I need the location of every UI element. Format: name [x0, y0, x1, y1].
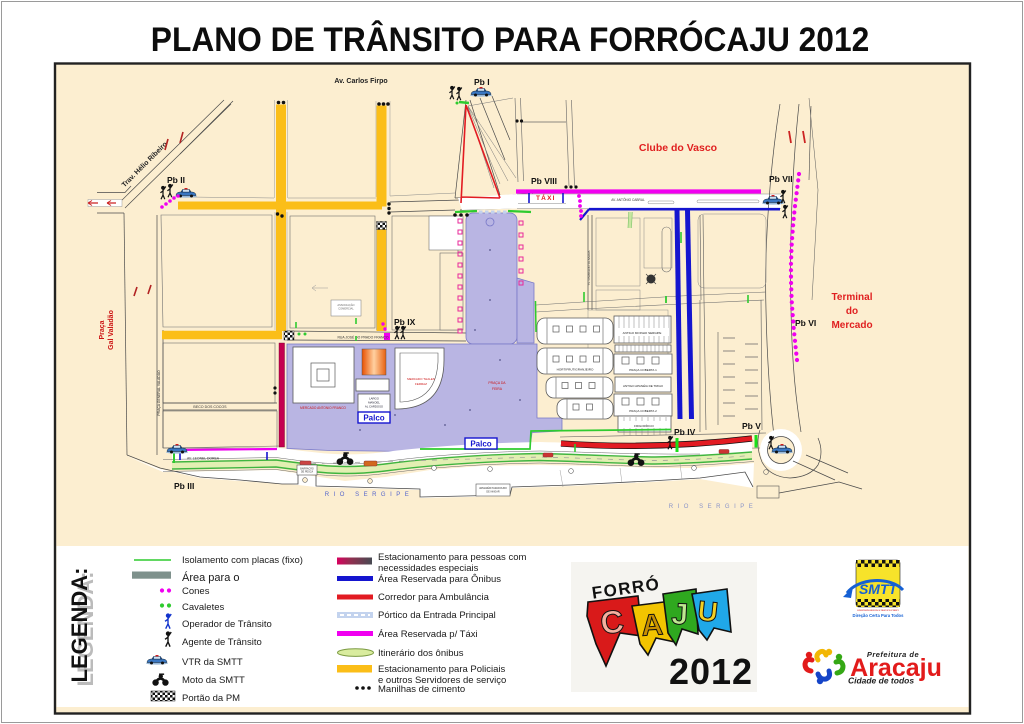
svg-text:HORTIFRUTIGRANJEIRO: HORTIFRUTIGRANJEIRO — [557, 368, 594, 372]
svg-text:Isolamento com placas (fixo): Isolamento com placas (fixo) — [182, 555, 303, 566]
svg-text:AL CARDOSO: AL CARDOSO — [365, 405, 384, 409]
svg-text:Av. Carlos Firpo: Av. Carlos Firpo — [334, 78, 387, 85]
svg-text:Pb II: Pb II — [167, 175, 185, 185]
svg-text:ANTIGO APANÉIA DE TRIGO: ANTIGO APANÉIA DE TRIGO — [623, 383, 664, 388]
svg-text:Moto da SMTT: Moto da SMTT — [182, 675, 245, 686]
svg-text:Cones: Cones — [182, 586, 210, 597]
svg-text:MERCADO ANTONIO FRANCO: MERCADO ANTONIO FRANCO — [300, 406, 346, 410]
svg-text:BECO DOS COCOS: BECO DOS COCOS — [193, 405, 227, 409]
svg-text:ANTIGO MOINHO SERGIPE: ANTIGO MOINHO SERGIPE — [623, 331, 662, 335]
svg-text:RIO SERGIPE: RIO SERGIPE — [669, 504, 758, 510]
svg-text:FRIGORÍFICO: FRIGORÍFICO — [634, 424, 654, 428]
svg-text:FEIRA: FEIRA — [492, 387, 503, 391]
svg-text:RIO SERGIPE: RIO SERGIPE — [325, 492, 414, 498]
svg-text:Corredor para Ambulância: Corredor para Ambulância — [378, 592, 490, 603]
svg-text:Cidade de todos: Cidade de todos — [848, 676, 914, 686]
svg-text:Palco: Palco — [470, 440, 491, 449]
svg-text:2012: 2012 — [669, 651, 753, 692]
svg-text:DE PESCA: DE PESCA — [301, 471, 313, 474]
svg-text:MERCADO THALES: MERCADO THALES — [407, 377, 435, 381]
svg-text:VTR da SMTT: VTR da SMTT — [182, 657, 243, 668]
svg-text:PRAÇA COBERTA 2: PRAÇA COBERTA 2 — [629, 409, 657, 413]
svg-text:PRAÇA COBERTA 1: PRAÇA COBERTA 1 — [629, 368, 657, 372]
svg-text:TÁXI: TÁXI — [536, 193, 556, 202]
svg-text:Itinerário dos ônibus: Itinerário dos ônibus — [378, 648, 464, 659]
svg-text:Pb VII: Pb VII — [769, 174, 793, 184]
svg-text:PRAÇA DA: PRAÇA DA — [488, 381, 506, 385]
svg-text:Área para o: Área para o — [182, 571, 239, 584]
svg-text:AV. ANTÔNIO CABRAL: AV. ANTÔNIO CABRAL — [611, 197, 645, 202]
svg-text:Terminal: Terminal — [832, 292, 873, 303]
svg-text:Pórtico da Entrada Principal: Pórtico da Entrada Principal — [378, 610, 496, 621]
svg-text:Gal Valadão: Gal Valadão — [108, 310, 115, 350]
svg-text:Pb V: Pb V — [742, 421, 761, 431]
svg-text:Mercado: Mercado — [831, 320, 872, 331]
svg-text:U: U — [696, 595, 719, 628]
svg-text:TV. OSWALDO OLIVEIRA: TV. OSWALDO OLIVEIRA — [587, 250, 591, 285]
svg-text:Pb I: Pb I — [474, 77, 490, 87]
svg-text:AV. LEONEL DOREA: AV. LEONEL DOREA — [187, 457, 220, 461]
svg-text:Manilhas de cimento: Manilhas de cimento — [378, 684, 465, 695]
svg-text:Cavaletes: Cavaletes — [182, 602, 224, 613]
svg-text:necessidades especiais: necessidades especiais — [378, 563, 479, 574]
svg-text:Área Reservada p/ Táxi: Área Reservada p/ Táxi — [378, 629, 478, 640]
svg-text:RUA JOSÉ DO PRADO FRANCO: RUA JOSÉ DO PRADO FRANCO — [337, 335, 388, 340]
svg-text:Clube do Vasco: Clube do Vasco — [639, 142, 717, 154]
svg-text:Estacionamento para Policiais: Estacionamento para Policiais — [378, 664, 506, 675]
svg-text:Área Reservada para Ônibus: Área Reservada para Ônibus — [378, 574, 501, 585]
svg-text:Pb VI: Pb VI — [795, 318, 816, 328]
svg-text:do: do — [846, 306, 858, 317]
svg-text:C: C — [598, 603, 626, 642]
svg-text:PLANO DE TRÂNSITO PARA FORRÓCA: PLANO DE TRÂNSITO PARA FORRÓCAJU 2012 — [151, 20, 869, 60]
svg-text:LEGENDA:: LEGENDA: — [67, 568, 92, 683]
svg-text:SUPERINTENDÊNCIA MUNICIPAL DE: SUPERINTENDÊNCIA MUNICIPAL DE TRANSPORTE… — [857, 609, 899, 612]
svg-text:J: J — [671, 598, 689, 632]
svg-text:Pb IX: Pb IX — [394, 317, 416, 327]
svg-text:Agente de Trânsito: Agente de Trânsito — [182, 637, 262, 648]
svg-text:Operador de Trânsito: Operador de Trânsito — [182, 619, 272, 630]
svg-text:Portão da PM: Portão da PM — [182, 693, 240, 704]
svg-text:PRAÇA GENERAL VALADÃO: PRAÇA GENERAL VALADÃO — [156, 370, 161, 416]
svg-text:COMERCIAL: COMERCIAL — [338, 307, 354, 311]
svg-text:Pb IV: Pb IV — [674, 427, 696, 437]
svg-text:Praça: Praça — [99, 320, 106, 339]
svg-text:A: A — [640, 608, 664, 642]
svg-text:Direção Certa Para Todos: Direção Certa Para Todos — [853, 613, 905, 618]
svg-text:Palco: Palco — [363, 414, 384, 423]
svg-text:Estacionamento para pessoas co: Estacionamento para pessoas com — [378, 552, 526, 563]
svg-text:DE IANGAR: DE IANGAR — [486, 491, 499, 494]
svg-text:Pb III: Pb III — [174, 481, 194, 491]
svg-text:FERRAZ: FERRAZ — [415, 382, 427, 386]
svg-text:Pb VIII: Pb VIII — [531, 176, 557, 186]
